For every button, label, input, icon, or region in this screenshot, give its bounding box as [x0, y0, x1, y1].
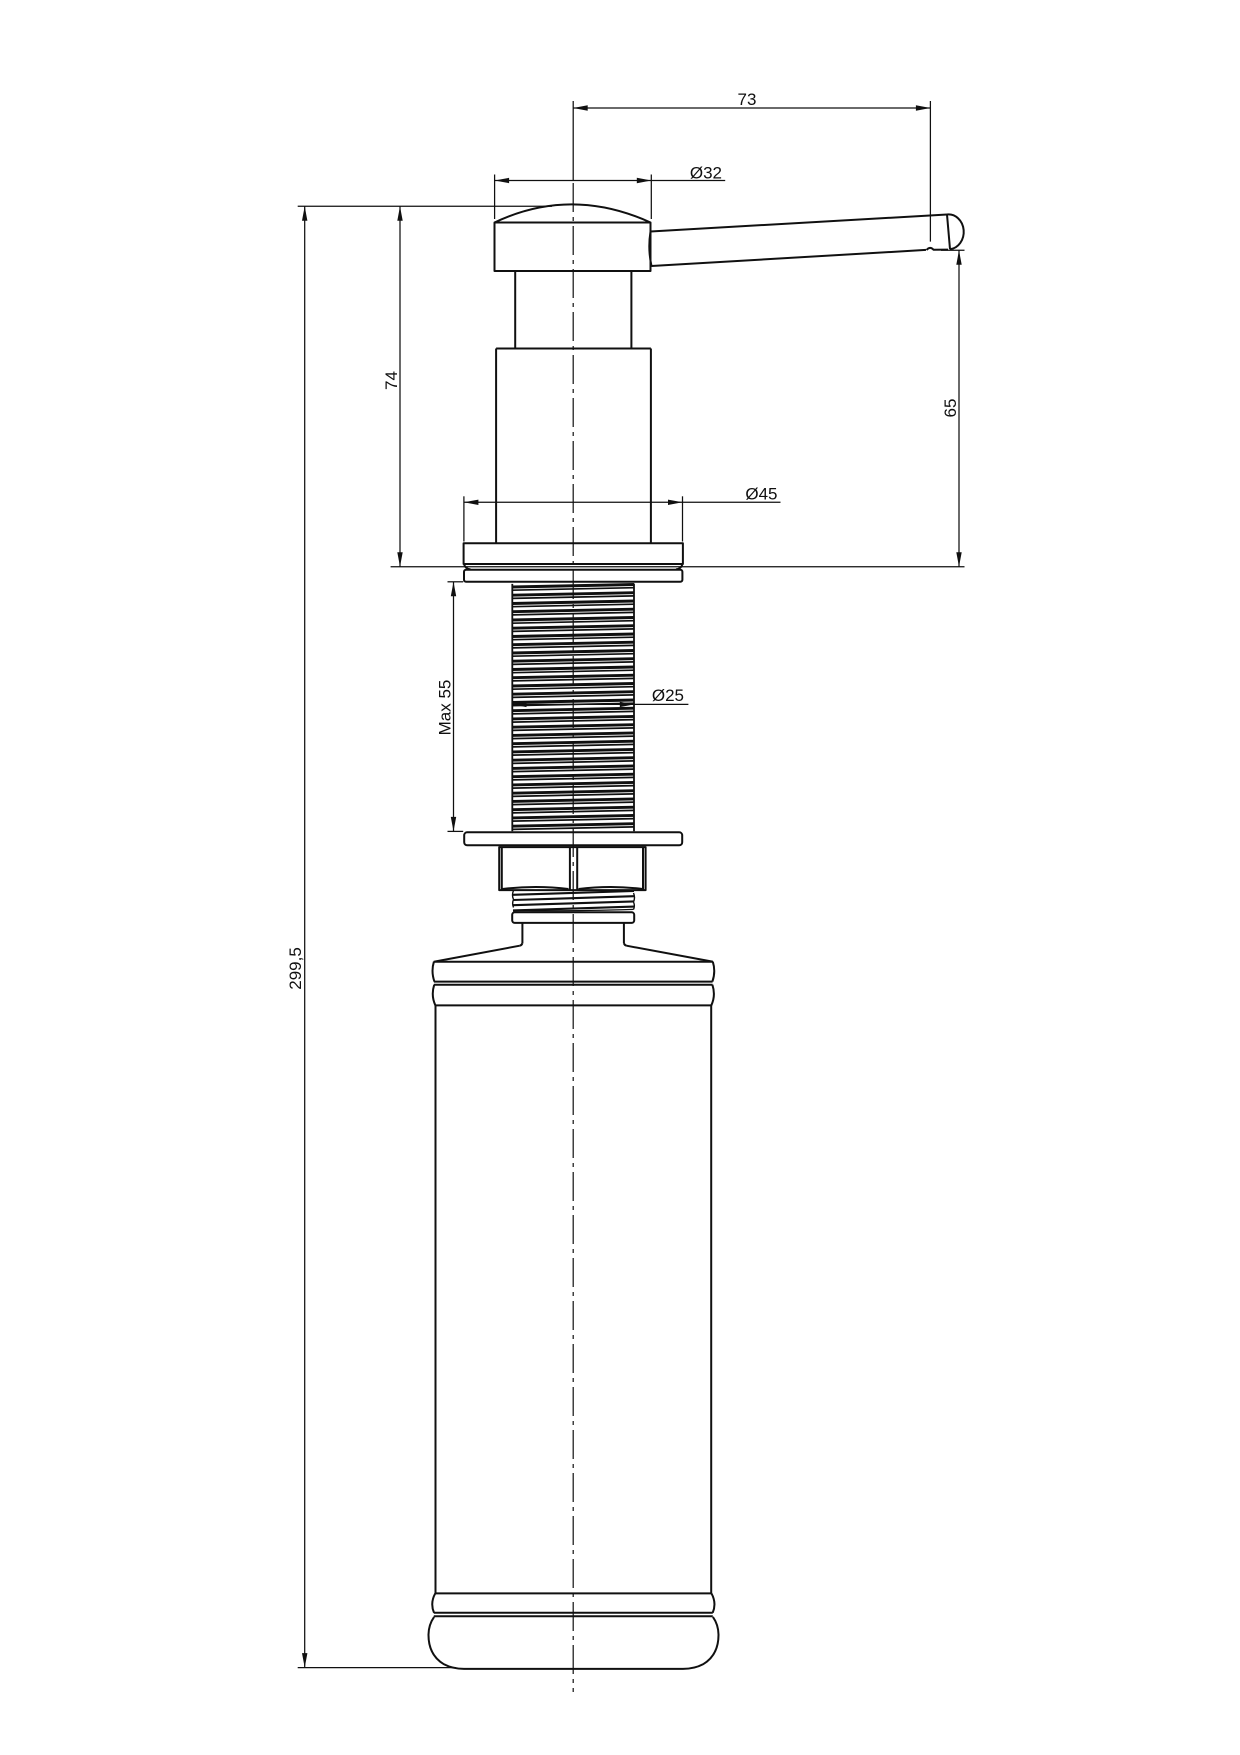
- svg-text:73: 73: [738, 90, 757, 109]
- svg-text:299,5: 299,5: [286, 947, 305, 990]
- svg-text:65: 65: [941, 399, 960, 418]
- svg-text:Ø25: Ø25: [652, 686, 684, 705]
- svg-text:74: 74: [382, 371, 401, 390]
- svg-text:Max 55: Max 55: [435, 680, 454, 736]
- svg-text:Ø45: Ø45: [745, 485, 777, 504]
- svg-text:Ø32: Ø32: [690, 163, 722, 182]
